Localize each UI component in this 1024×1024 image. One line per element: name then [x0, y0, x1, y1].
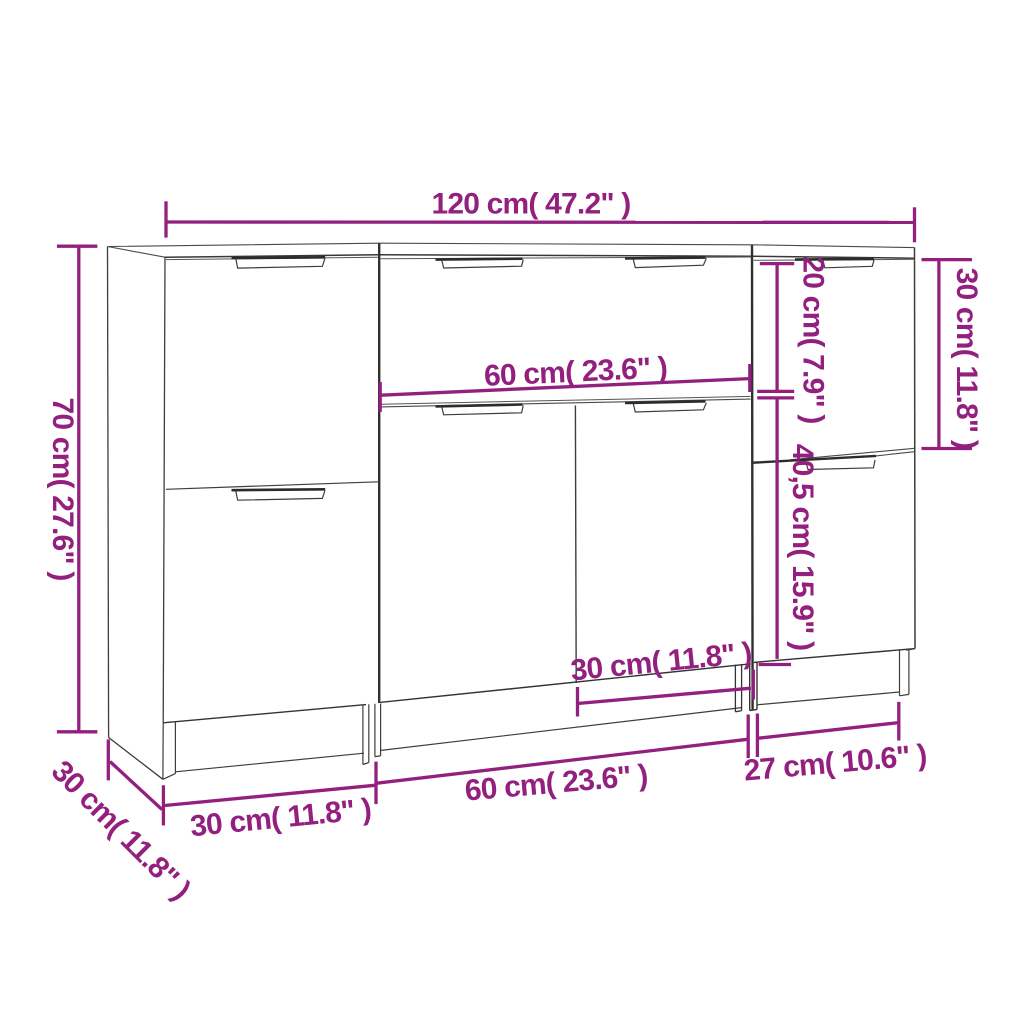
svg-text:120 cm( 47.2" ): 120 cm( 47.2" ) [431, 188, 630, 221]
svg-text:40,5 cm( 15.9" ): 40,5 cm( 15.9" ) [786, 444, 819, 651]
svg-text:20 cm( 7.9" ): 20 cm( 7.9" ) [796, 256, 829, 423]
svg-text:30 cm( 11.8" ): 30 cm( 11.8" ) [950, 268, 983, 449]
svg-text:70 cm( 27.6" ): 70 cm( 27.6" ) [46, 397, 79, 580]
